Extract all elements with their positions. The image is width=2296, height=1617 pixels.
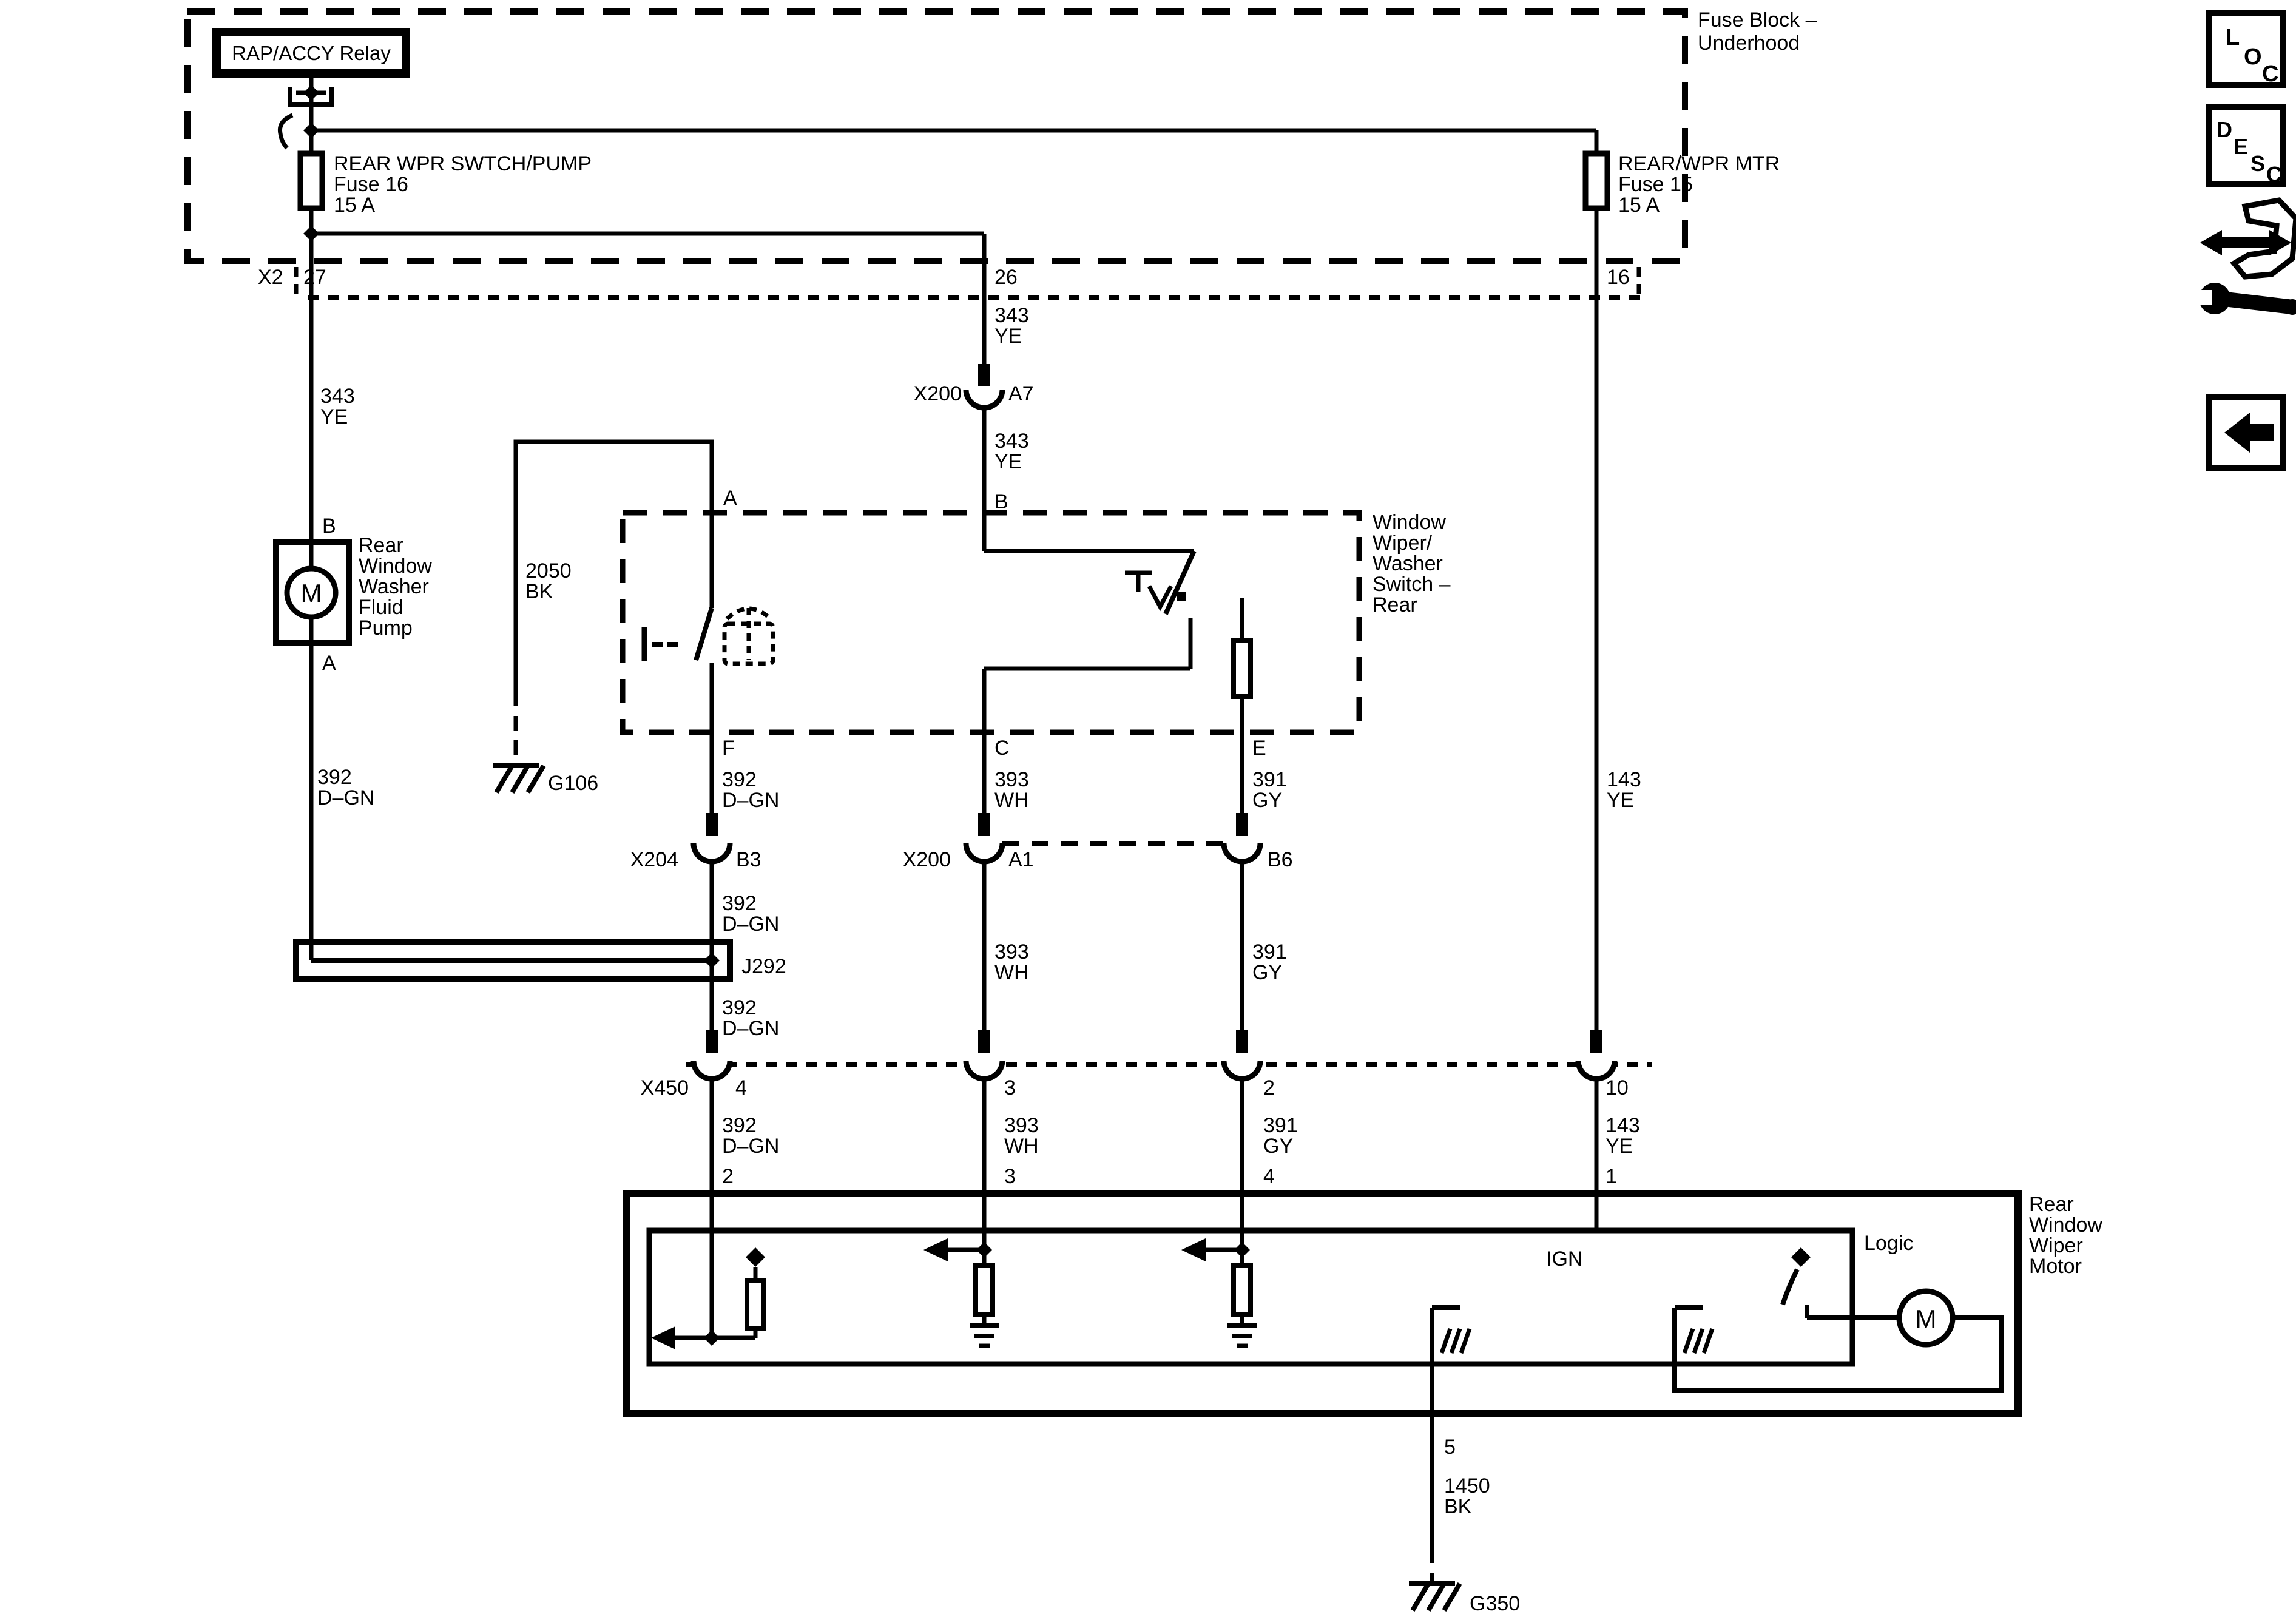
wire-label: 1450 — [1444, 1474, 1490, 1497]
wire-label: WH — [994, 789, 1029, 812]
ground-label: G350 — [1470, 1592, 1520, 1615]
junction-dot — [303, 123, 319, 138]
loc-letter: C — [2262, 61, 2278, 87]
connector-male-terminal — [1236, 1030, 1248, 1053]
pin-label: A — [723, 487, 737, 510]
switch-label: Window — [1373, 511, 1446, 534]
connector-female-socket — [694, 1061, 730, 1079]
motor-label: Rear — [2029, 1193, 2074, 1216]
fuse15-label: REAR/WPR MTR — [1618, 152, 1780, 175]
wire-label: 393 — [1004, 1114, 1039, 1137]
ground-branch-g106: 2050 BK G106 — [493, 442, 712, 795]
fuse16-label: Fuse 16 — [334, 173, 408, 196]
switch-output-labels: F C E 392 D–GN 393 WH 391 GY 143 YE — [722, 737, 1641, 812]
switch-label: Washer — [1373, 552, 1443, 575]
wire-label: 391 — [1252, 940, 1287, 964]
pin-label: B6 — [1268, 848, 1293, 871]
pump-label: Washer — [359, 575, 429, 598]
connector-label: X204 — [630, 848, 678, 871]
desc-letter: D — [2217, 117, 2232, 142]
pin-label: B3 — [736, 848, 761, 871]
fuse15-label: 15 A — [1618, 194, 1660, 217]
wire-label: D–GN — [722, 789, 779, 812]
ground-hatch — [528, 766, 544, 792]
park-cam-dot — [746, 1247, 765, 1267]
wire-label: WH — [994, 961, 1029, 984]
switch-blade — [696, 608, 712, 660]
wire-label: YE — [994, 325, 1022, 348]
connector-female-socket — [966, 390, 1002, 408]
connector-male-terminal — [1590, 1030, 1602, 1053]
switch-pivot-dot — [1791, 1247, 1811, 1267]
wire-label: YE — [1607, 789, 1634, 812]
pin-label: 3 — [1004, 1165, 1016, 1188]
pin-label: 2 — [1263, 1076, 1275, 1099]
wire-label: 343 — [994, 304, 1029, 327]
fuse-block-label: Underhood — [1698, 32, 1800, 55]
pump-label: Pump — [359, 616, 413, 640]
loc-button[interactable]: L O C — [2209, 13, 2283, 87]
pin-label: 4 — [1263, 1165, 1275, 1188]
arrow-left-icon — [923, 1238, 948, 1261]
pin-label: 1 — [1606, 1165, 1617, 1188]
case-ground-icon — [1675, 1308, 1712, 1353]
ground-hatch — [1704, 1329, 1712, 1353]
resistor-icon — [1234, 1265, 1251, 1315]
wire-label: YE — [320, 405, 348, 428]
ground-hatch — [1451, 1329, 1460, 1353]
pin-label: 27 — [303, 266, 326, 289]
rear-wiper-motor: Rear Window Wiper Motor — [627, 1193, 2102, 1414]
wire-label: 392 — [317, 766, 352, 789]
wire-label: D–GN — [722, 1017, 779, 1040]
wrench-icon[interactable] — [2198, 283, 2296, 315]
ground-hatch — [1428, 1584, 1444, 1610]
fuse-block-underhood: Fuse Block – Underhood — [187, 8, 1817, 261]
wrench-shaft — [2218, 291, 2294, 314]
pump-label: Fluid — [359, 596, 403, 619]
ground-earth-icon — [970, 1325, 999, 1346]
connector-x200-a7: 343 YE X200 A7 343 YE — [914, 304, 1034, 513]
connector-male-terminal — [1236, 813, 1248, 836]
wire-label: BK — [525, 580, 553, 603]
wire-label: YE — [994, 450, 1022, 473]
ground-chassis-icon — [1409, 1584, 1460, 1610]
connector-male-terminal — [706, 813, 718, 836]
wire-label: 343 — [320, 385, 355, 408]
connector-female-socket — [1224, 843, 1260, 862]
connector-label: X450 — [641, 1076, 689, 1099]
resistor-icon — [1234, 641, 1251, 697]
connector-label: X200 — [914, 382, 962, 405]
motor-outer-box — [627, 1193, 2018, 1414]
switch-label: Wiper/ — [1373, 532, 1433, 555]
case-ground-icon — [1432, 1308, 1470, 1364]
splice-j292: J292 392 D–GN — [296, 939, 786, 1040]
splice-label: J292 — [741, 955, 786, 978]
wire-label: GY — [1252, 789, 1282, 812]
pin-label: 3 — [1004, 1076, 1016, 1099]
fuse-block-label: Fuse Block – — [1698, 8, 1817, 32]
motor-label: Window — [2029, 1214, 2102, 1237]
wiper-washer-switch: A B Window Wiper/ Washer Switch – Rear — [623, 487, 1451, 813]
wire-label: 392 — [722, 892, 757, 915]
back-button[interactable] — [2209, 397, 2283, 468]
pin-label: F — [722, 737, 735, 760]
ground-hatch — [1444, 1584, 1460, 1610]
ground-hatch — [1684, 1329, 1693, 1353]
loc-letter: O — [2244, 44, 2262, 70]
switch-label: Rear — [1373, 593, 1417, 616]
pin-label: 4 — [735, 1076, 747, 1099]
junction-dot — [1234, 1242, 1250, 1258]
ground-label: G106 — [548, 772, 598, 795]
fuse-block-border — [187, 12, 1685, 261]
relay-contact-arc — [280, 115, 292, 148]
wire-label: 143 — [1607, 768, 1641, 791]
pump-label: Window — [359, 555, 432, 578]
pump-label: Rear — [359, 534, 403, 557]
pin-label: C — [994, 737, 1010, 760]
wire-label: 392 — [722, 768, 757, 791]
pin-label: 26 — [994, 266, 1018, 289]
resistor-icon — [976, 1265, 993, 1315]
wrench-notch — [2198, 290, 2212, 305]
desc-letter: S — [2250, 151, 2265, 176]
wire-label: WH — [1004, 1135, 1039, 1158]
fuse-16-icon — [300, 154, 322, 208]
connector-female-socket — [1224, 1061, 1260, 1079]
fuse15-label: Fuse 15 — [1618, 173, 1693, 196]
fuse-15-icon — [1585, 154, 1607, 208]
ground-hatch — [1413, 1584, 1428, 1610]
pin-label: E — [1252, 737, 1266, 760]
pin-label: A1 — [1008, 848, 1034, 871]
sidebar: L O C D E S C — [2198, 13, 2296, 468]
switch-blade — [1166, 551, 1194, 614]
loc-letter: L — [2226, 25, 2240, 50]
arrow-left-icon — [651, 1326, 675, 1349]
relay-label: RAP/ACCY Relay — [232, 42, 391, 64]
connector-row-x2: X2 27 26 16 — [258, 266, 1640, 297]
connector-female-socket — [694, 843, 730, 862]
ground-hatch — [496, 766, 512, 792]
connector-female-socket — [966, 843, 1002, 862]
ground-earth-icon — [1227, 1325, 1257, 1346]
wire-label: 392 — [722, 1114, 757, 1137]
wire-label: D–GN — [722, 1135, 779, 1158]
wire-label: GY — [1252, 961, 1282, 984]
motor-m: M — [1916, 1305, 1937, 1333]
switch-blade — [1783, 1269, 1797, 1305]
wire-label: 343 — [994, 430, 1029, 453]
ground-hatch — [1694, 1329, 1703, 1353]
wire-label: GY — [1263, 1135, 1293, 1158]
pin-label: B — [994, 490, 1008, 513]
motor-label: Wiper — [2029, 1234, 2083, 1257]
resistor-icon — [747, 1280, 764, 1329]
pin-label: 5 — [1444, 1436, 1456, 1459]
pin-label: 2 — [722, 1165, 734, 1188]
logic-label: Logic — [1864, 1232, 1913, 1255]
ground-branch-g350: 5 1450 BK G350 — [1409, 1364, 1520, 1615]
wire-label: D–GN — [317, 786, 374, 809]
pan-wrench-button[interactable] — [2198, 200, 2296, 315]
wire-label: 393 — [994, 940, 1029, 964]
wire-label: YE — [1606, 1135, 1633, 1158]
junction-dot — [976, 1242, 992, 1258]
connector-female-socket — [966, 1061, 1002, 1079]
pin-label: 16 — [1607, 266, 1630, 289]
connector-male-terminal — [978, 813, 990, 836]
desc-letter: E — [2234, 134, 2248, 159]
wire-label: 2050 — [525, 559, 572, 582]
pump-m: M — [301, 579, 322, 607]
arrow-left-icon — [1181, 1238, 1206, 1261]
wire-label: 143 — [1606, 1114, 1640, 1137]
contact-dot — [1177, 592, 1186, 601]
wire-label: 392 — [722, 996, 757, 1019]
wire-label: 391 — [1252, 768, 1287, 791]
switch-label: Switch – — [1373, 573, 1451, 596]
wire-label: 391 — [1263, 1114, 1298, 1137]
ground-hatch — [1461, 1329, 1470, 1353]
ground-hatch — [1442, 1329, 1450, 1353]
connector-male-terminal — [978, 1030, 990, 1053]
desc-button[interactable]: D E S C — [2209, 107, 2283, 187]
pin-label: 10 — [1606, 1076, 1629, 1099]
wire-label: 393 — [994, 768, 1029, 791]
pin-label: A — [322, 652, 336, 675]
fuse16-label: REAR WPR SWTCH/PUMP — [334, 152, 592, 175]
connector-label: X2 — [258, 266, 283, 289]
washer-pump-branch: 343 YE B M Rear Window Washer Fluid Pump… — [276, 385, 432, 960]
motor-label: Motor — [2029, 1255, 2082, 1278]
fuse16-label: 15 A — [334, 194, 375, 217]
ign-label: IGN — [1546, 1247, 1582, 1271]
wiring-diagram: Fuse Block – Underhood RAP/ACCY Relay RE… — [0, 0, 2296, 1617]
connector-label: X200 — [903, 848, 951, 871]
pin-label: A7 — [1008, 382, 1034, 405]
junction-dot — [303, 226, 319, 241]
ground-chassis-icon — [493, 766, 544, 792]
pin-label: B — [322, 515, 336, 538]
connector-row-x450: X450 4 3 2 10 392 D–GN 393 WH 391 GY 143… — [641, 1030, 1652, 1232]
wash-position-icon — [724, 624, 773, 664]
connector-male-terminal — [978, 364, 990, 386]
desc-letter: C — [2266, 162, 2282, 187]
wire-label: D–GN — [722, 913, 779, 936]
ground-hatch — [512, 766, 528, 792]
wire-label: BK — [1444, 1495, 1472, 1518]
junction-dot — [704, 1330, 720, 1346]
connector-male-terminal — [706, 1030, 718, 1053]
